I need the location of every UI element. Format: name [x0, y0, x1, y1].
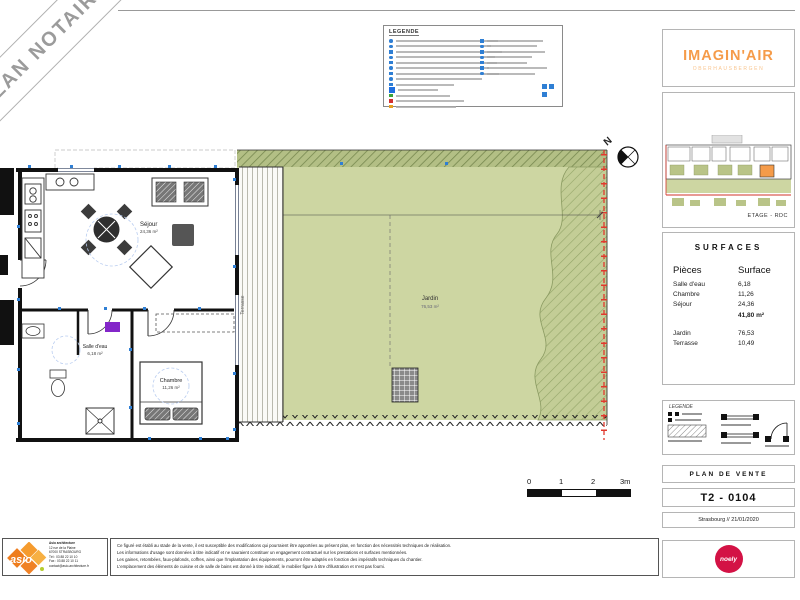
legend-symbol-icon — [389, 105, 393, 109]
highlighted-unit — [760, 165, 774, 177]
legend-row — [389, 94, 502, 98]
legend-symbol-icon — [389, 50, 393, 54]
legend-text-line — [487, 40, 543, 42]
legend-text-line — [487, 73, 535, 75]
legend-text-line — [396, 95, 450, 97]
lot-number-box: T2 - 0104 — [662, 488, 795, 507]
surface-row: Chambre 11,26 — [663, 291, 794, 300]
site-plan-thumbnail — [664, 135, 793, 209]
terrace-label: Terrasse — [240, 295, 246, 314]
legend-symbol-icon — [480, 50, 484, 54]
disclaimer-line: Les gaines, retombées, faux-plafonds, co… — [117, 556, 547, 563]
legend-row — [480, 55, 547, 59]
surface-row: Salle d'eau 6,18 — [663, 281, 794, 290]
chambre-area-label: 11,26 m² — [162, 385, 180, 390]
chambre-label: Chambre — [160, 378, 183, 384]
architect-contact: Asio architecture 12 rue de la Plaine 67… — [49, 541, 107, 569]
sejour-label: Séjour — [140, 222, 157, 228]
plan-sheet: PLAN NOTAIRE LEGENDE — [0, 0, 800, 600]
symbols-legend-title: LEGENDE — [669, 404, 693, 410]
garden-area-label: 76,53 m² — [421, 304, 439, 309]
legend-text-line — [396, 45, 491, 47]
legend-row — [480, 61, 547, 65]
legend-symbol-icon — [389, 66, 393, 70]
surfaces-title: SURFACES — [663, 243, 794, 252]
legend-symbol-icon — [389, 39, 393, 43]
legend-text-line — [398, 89, 438, 91]
disclaimer-line: Les informations d'usage sont données à … — [117, 549, 547, 556]
apartment: Séjour 24,36 m² Chambre 11,26 m² Salle d… — [0, 150, 240, 442]
legend-symbol-icon — [480, 39, 484, 43]
site-plan-box: ETAGE - RDC — [662, 92, 795, 228]
plan-type-box: PLAN DE VENTE — [662, 465, 795, 483]
symbols-legend-graphics — [665, 411, 792, 454]
door-symbol — [765, 423, 789, 447]
surface-row: Terrasse 10,49 — [663, 340, 794, 349]
garden-grate-icon — [392, 368, 418, 402]
surface-total: 41,80 m² — [738, 312, 764, 319]
legend-text-line — [396, 78, 482, 80]
legend-row — [480, 72, 547, 76]
disclaimer-box: Ce figuré est établi au stade de la vent… — [110, 538, 659, 576]
legend-symbol-icon — [389, 99, 393, 103]
terrace-area: Terrasse — [239, 167, 283, 422]
sheet-frame-line — [118, 10, 795, 11]
noely-logo: noely — [715, 545, 743, 573]
legend-row — [480, 39, 547, 43]
legend-text-line — [396, 100, 464, 102]
garden-zigzag-edge — [237, 415, 607, 426]
lot-number: T2 - 0104 — [700, 492, 756, 504]
surfaces-box: SURFACES Pièces Surface Salle d'eau 6,18… — [662, 232, 795, 385]
garden-area: Jardin 76,53 m² — [237, 150, 607, 440]
legend-symbol-icon — [480, 56, 484, 60]
washbasin-icon — [22, 324, 44, 338]
surface-total-row: 41,80 m² — [663, 312, 794, 321]
scale-label: 3m — [620, 477, 630, 486]
legend-row — [480, 66, 547, 70]
adjacent-wall — [0, 168, 14, 215]
scale-label: 0 — [527, 477, 531, 486]
scale-bar: 0 1 2 3m — [527, 477, 633, 499]
legend-row — [389, 99, 502, 103]
hatch-symbol — [668, 425, 706, 437]
legend-symbol-icon — [389, 94, 393, 98]
legend-row — [480, 44, 547, 48]
legend-text-line — [487, 62, 527, 64]
legend-symbol-icon — [480, 45, 484, 49]
legend-symbol-icon — [389, 87, 395, 93]
legend-symbol-icon — [389, 56, 393, 60]
sejour-area-label: 24,36 m² — [140, 229, 158, 234]
electrical-legend-box: LEGENDE — [383, 25, 563, 107]
floor-plan: Jardin 76,53 m² N Terrasse — [0, 110, 660, 530]
north-label: N — [602, 135, 615, 148]
toilet-icon — [50, 370, 66, 397]
tv-bench-icon — [152, 178, 208, 206]
legend-row — [480, 50, 547, 54]
legend-text-line — [487, 45, 537, 47]
garden-label: Jardin — [422, 296, 438, 302]
legend-text-line — [487, 67, 547, 69]
publisher-box: noely — [662, 540, 795, 578]
disclaimer-line: Ce figuré est établi au stade de la vent… — [117, 542, 547, 549]
electrical-panel-icon — [105, 322, 120, 332]
legend-symbol-icon — [480, 72, 484, 76]
plan-type-label: PLAN DE VENTE — [689, 471, 767, 478]
disclaimer-line: L'emplacement des éléments de cuisine et… — [117, 563, 547, 570]
salle-eau-area-label: 6,18 m² — [87, 351, 103, 356]
legend-symbol-icon — [389, 83, 393, 87]
legend-row — [389, 88, 502, 92]
noely-logo-text: noely — [720, 556, 737, 563]
legend-symbol-icon — [389, 45, 393, 49]
surface-row: Jardin 76,53 — [663, 330, 794, 339]
banner-label: PLAN NOTAIRE — [0, 0, 113, 114]
asio-logo: asio — [5, 542, 47, 575]
window-symbol — [721, 432, 759, 444]
shower-icon — [86, 408, 114, 434]
brand-title: IMAGIN'AIR — [663, 48, 794, 64]
salle-eau-label: Salle d'eau — [83, 344, 108, 350]
legend-col-right — [480, 39, 547, 77]
legend-row — [389, 77, 502, 81]
scale-label: 2 — [591, 477, 595, 486]
upper-floor-outline — [55, 150, 235, 168]
armchair-icon — [172, 224, 194, 246]
architect-box: asio Asio architecture 12 rue de la Plai… — [2, 538, 108, 576]
col-header-surface: Surface — [738, 265, 771, 276]
legend-row — [389, 83, 502, 87]
legend-text-line — [487, 51, 545, 53]
garden-top-hatch — [237, 150, 607, 167]
legend-symbol-icon — [480, 66, 484, 70]
asio-logo-text: asio — [10, 554, 32, 566]
legend-symbol-icon — [389, 77, 393, 81]
legend-text-line — [396, 106, 456, 108]
brand-box: IMAGIN'AIR OBERHAUSBERGEN — [662, 29, 795, 87]
legend-row — [389, 105, 502, 109]
legend-extra-symbols — [542, 84, 558, 100]
scale-label: 1 — [559, 477, 563, 486]
adjacent-wall — [0, 300, 14, 345]
city-date-box: Strasbourg // 21/01/2020 — [662, 512, 795, 528]
col-header-pieces: Pièces — [673, 265, 702, 276]
city-date: Strasbourg // 21/01/2020 — [698, 517, 759, 523]
legend-symbol-icon — [480, 61, 484, 65]
legend-symbol-icon — [389, 61, 393, 65]
brand-subtitle: OBERHAUSBERGEN — [663, 66, 794, 72]
legend-symbol-icon — [389, 72, 393, 76]
legend-text-line — [396, 67, 489, 69]
legend-text-line — [396, 84, 454, 86]
legend-title: LEGENDE — [389, 29, 419, 36]
legend-text-line — [487, 56, 532, 58]
surface-row: Séjour 24,36 — [663, 301, 794, 310]
adjacent-wall — [0, 255, 8, 275]
symbols-legend-box: LEGENDE — [662, 400, 795, 455]
bed-icon — [140, 362, 202, 424]
window-symbol — [721, 414, 759, 426]
scale-bar-segments — [527, 489, 631, 497]
floor-caption: ETAGE - RDC — [747, 213, 788, 219]
